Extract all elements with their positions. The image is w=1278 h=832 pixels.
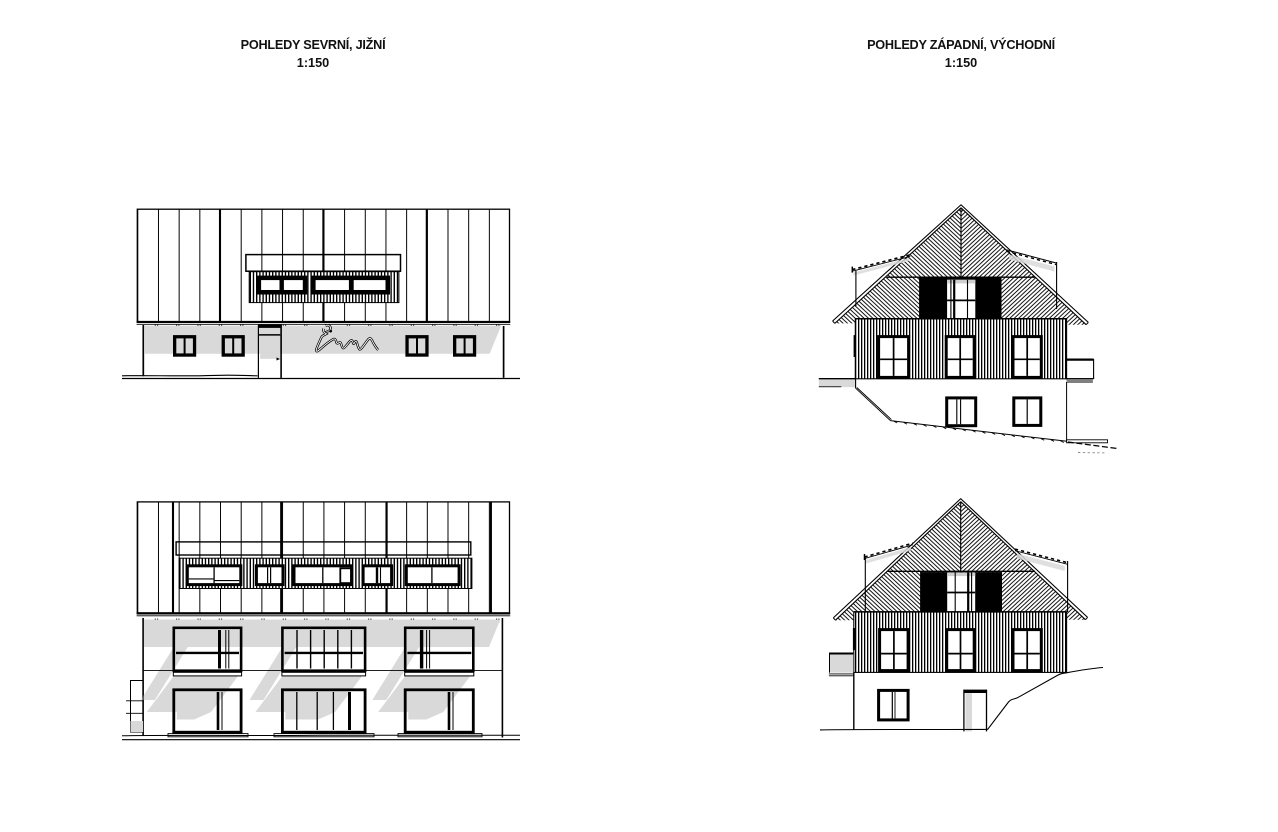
svg-text:1:150: 1:150	[945, 56, 977, 70]
svg-text:1:150: 1:150	[297, 56, 329, 70]
svg-text:POHLEDY SEVRNÍ, JIŽNÍ: POHLEDY SEVRNÍ, JIŽNÍ	[241, 37, 386, 52]
svg-text:POHLEDY ZÁPADNÍ, VÝCHODNÍ: POHLEDY ZÁPADNÍ, VÝCHODNÍ	[867, 37, 1056, 52]
